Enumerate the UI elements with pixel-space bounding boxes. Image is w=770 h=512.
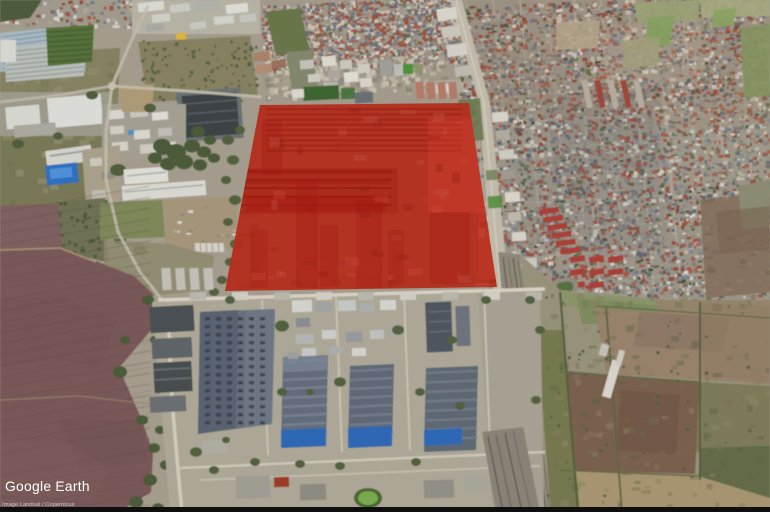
- svg-text:Google Earth: Google Earth: [5, 479, 90, 494]
